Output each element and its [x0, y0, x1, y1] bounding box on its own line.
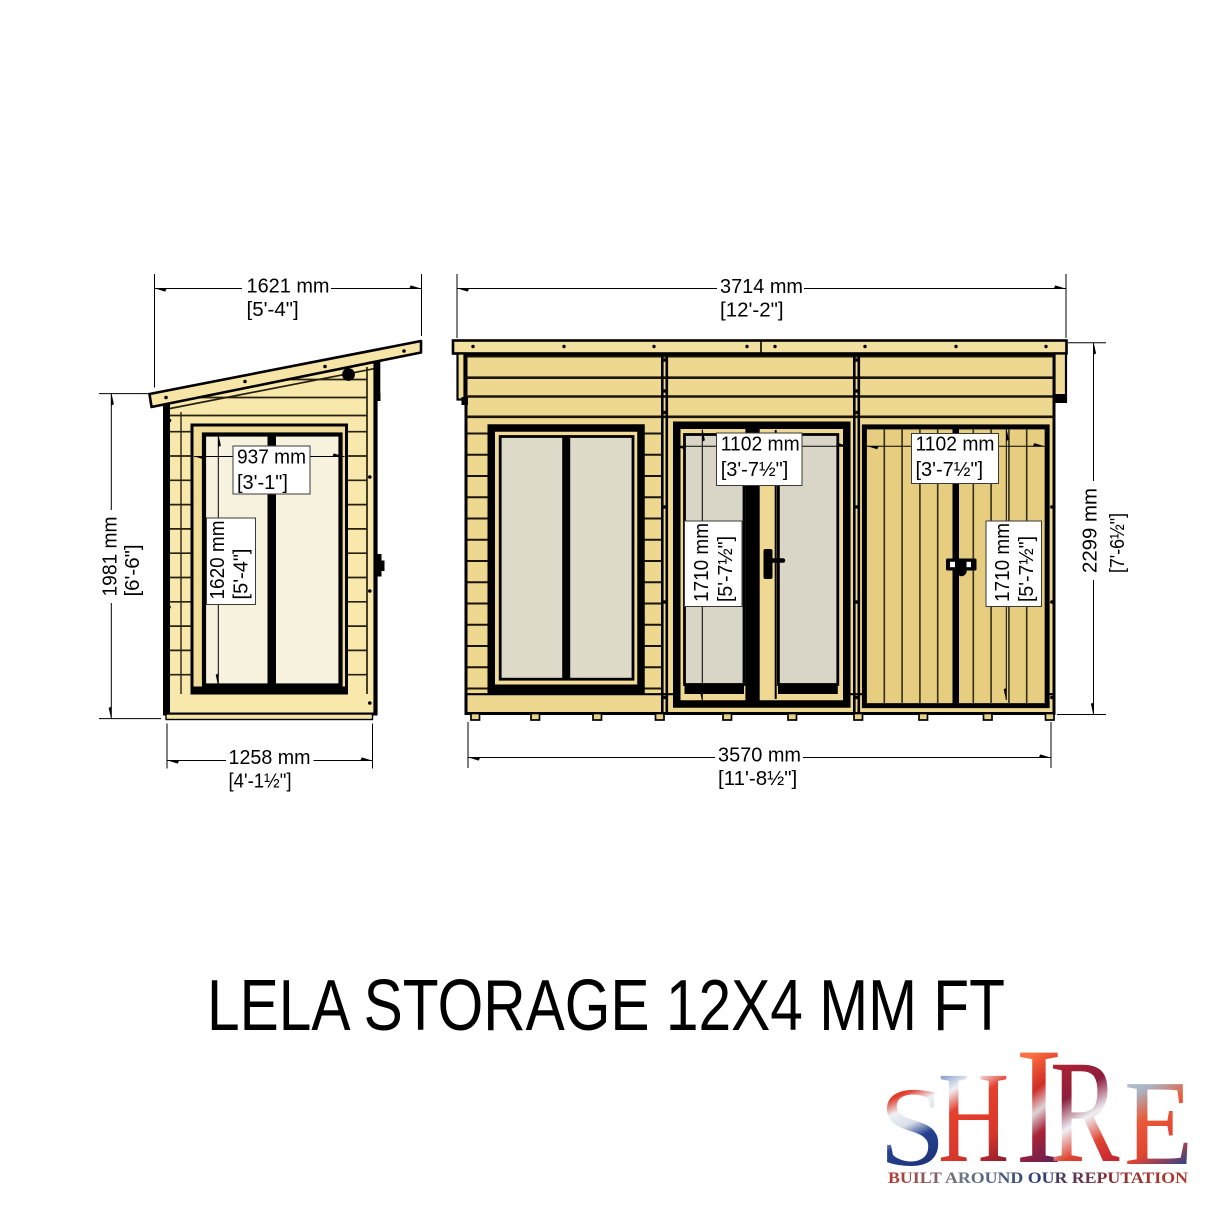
- svg-text:1620 mm: 1620 mm: [207, 521, 229, 600]
- svg-text:1710 mm: 1710 mm: [691, 523, 713, 602]
- svg-text:1621 mm: 1621 mm: [247, 275, 330, 298]
- svg-text:H: H: [938, 1045, 1009, 1189]
- svg-text:R: R: [1050, 1029, 1120, 1193]
- svg-text:1102 mm: 1102 mm: [916, 434, 995, 456]
- svg-text:3714 mm: 3714 mm: [720, 275, 803, 298]
- svg-text:[5'-4"]: [5'-4"]: [231, 549, 253, 600]
- svg-text:[11'-8½"]: [11'-8½"]: [718, 767, 797, 790]
- svg-text:[3'-7½"]: [3'-7½"]: [916, 459, 984, 481]
- svg-text:[6'-6"]: [6'-6"]: [121, 545, 144, 597]
- svg-text:[12'-2"]: [12'-2"]: [720, 298, 784, 321]
- svg-text:1710 mm: 1710 mm: [992, 523, 1014, 602]
- svg-text:BUILT AROUND OUR REPUTATION: BUILT AROUND OUR REPUTATION: [888, 1170, 1188, 1187]
- svg-text:[7'-6½"]: [7'-6½"]: [1106, 513, 1129, 573]
- svg-text:1258 mm: 1258 mm: [229, 746, 311, 769]
- svg-text:1102 mm: 1102 mm: [721, 434, 800, 456]
- svg-text:1981 mm: 1981 mm: [98, 517, 121, 597]
- svg-text:3570 mm: 3570 mm: [718, 744, 801, 767]
- svg-text:[4'-1½"]: [4'-1½"]: [229, 769, 292, 792]
- svg-text:[3'-7½"]: [3'-7½"]: [721, 459, 789, 481]
- svg-text:[5'-4"]: [5'-4"]: [247, 298, 299, 321]
- svg-text:[5'-7½"]: [5'-7½"]: [1016, 536, 1038, 602]
- svg-text:[5'-7½"]: [5'-7½"]: [715, 536, 737, 602]
- svg-text:[3'-1"]: [3'-1"]: [237, 472, 288, 494]
- svg-text:LELA STORAGE 12X4 MM FT: LELA STORAGE 12X4 MM FT: [207, 966, 1005, 1046]
- svg-text:2299 mm: 2299 mm: [1078, 488, 1101, 573]
- svg-text:937 mm: 937 mm: [237, 447, 306, 469]
